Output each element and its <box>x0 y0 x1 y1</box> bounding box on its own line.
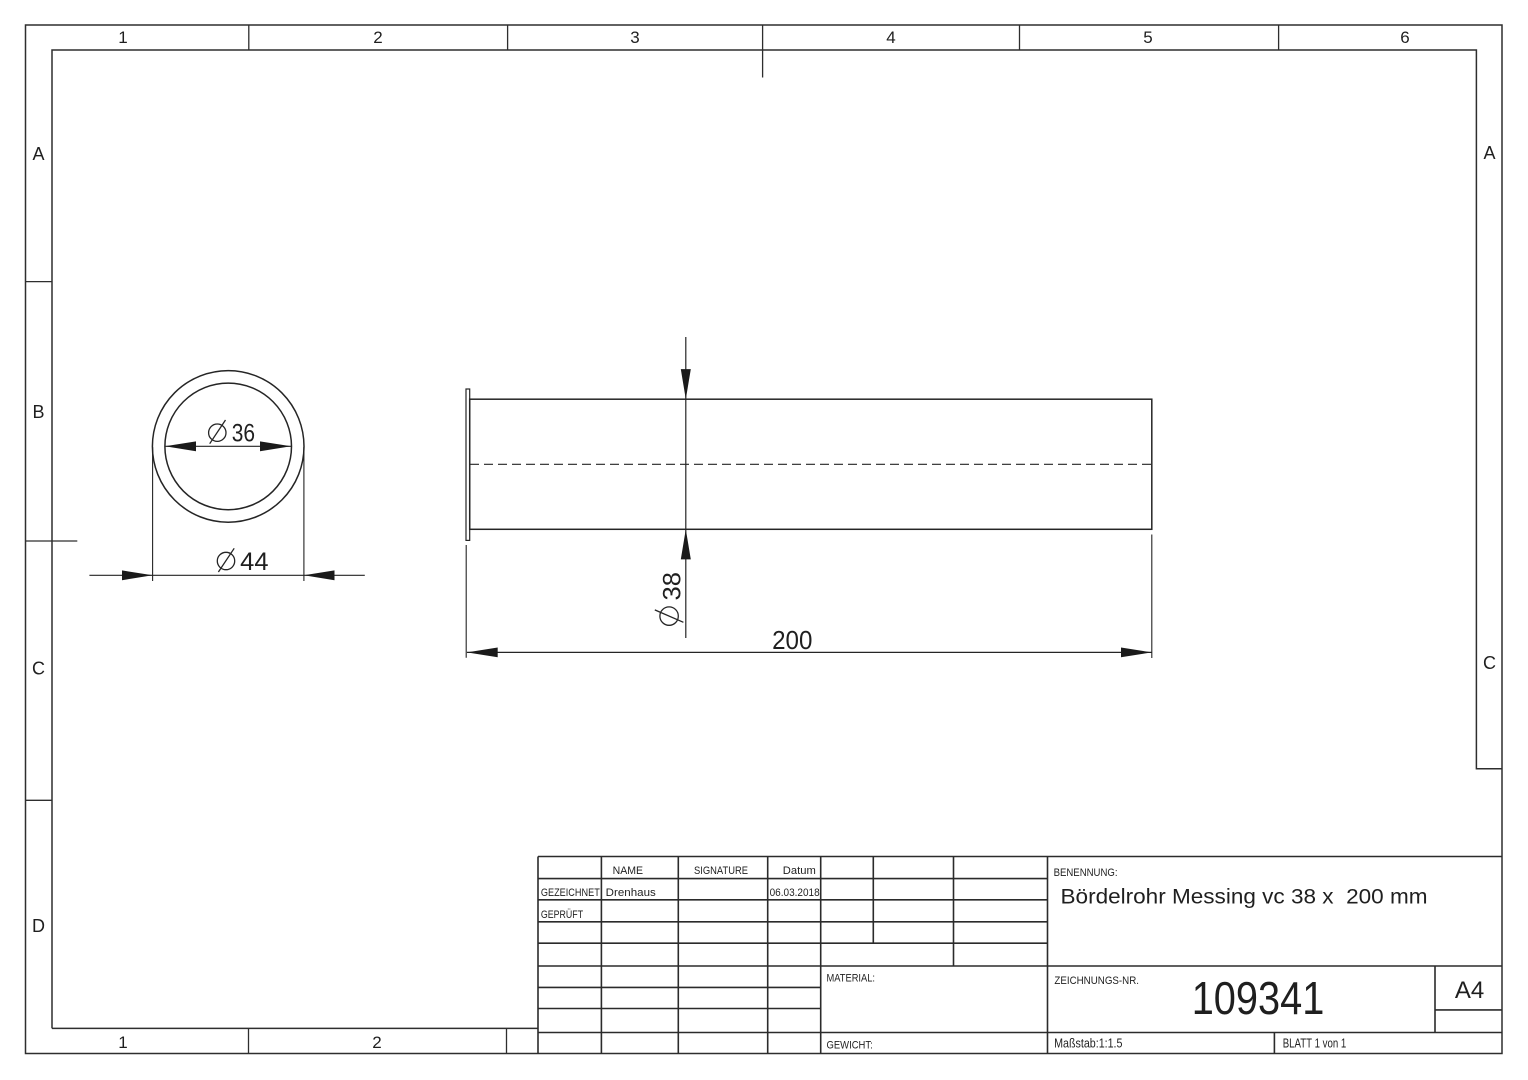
svg-text:2: 2 <box>372 1033 381 1052</box>
svg-text:D: D <box>32 916 45 936</box>
svg-text:A: A <box>1483 143 1495 163</box>
svg-text:Bördelrohr Messing vc 38 x 20: Bördelrohr Messing vc 38 x 200 mm <box>1061 885 1428 909</box>
svg-text:A: A <box>32 144 44 164</box>
svg-text:06.03.2018: 06.03.2018 <box>770 887 820 899</box>
svg-text:GEZEICHNET: GEZEICHNET <box>541 887 600 899</box>
svg-text:44: 44 <box>240 548 268 576</box>
svg-text:GEPRÜFT: GEPRÜFT <box>541 909 583 921</box>
svg-text:C: C <box>32 659 45 679</box>
svg-text:SIGNATURE: SIGNATURE <box>694 865 748 877</box>
svg-text:B: B <box>32 402 44 422</box>
svg-text:5: 5 <box>1143 28 1152 47</box>
svg-text:GEWICHT:: GEWICHT: <box>827 1040 873 1052</box>
svg-text:Datum: Datum <box>783 865 816 877</box>
svg-text:ZEICHNUNGS-NR.: ZEICHNUNGS-NR. <box>1054 975 1139 987</box>
svg-text:C: C <box>1483 653 1496 673</box>
svg-text:38: 38 <box>659 572 687 600</box>
svg-text:109341: 109341 <box>1192 972 1325 1024</box>
svg-text:36: 36 <box>232 420 255 448</box>
svg-text:6: 6 <box>1400 28 1409 47</box>
svg-text:4: 4 <box>886 28 895 47</box>
svg-text:200: 200 <box>772 625 812 655</box>
svg-text:BLATT 1 von 1: BLATT 1 von 1 <box>1283 1036 1347 1051</box>
svg-text:NAME: NAME <box>613 865 643 877</box>
svg-text:2: 2 <box>373 28 382 47</box>
svg-text:Maßstab:1:1.5: Maßstab:1:1.5 <box>1054 1036 1122 1051</box>
svg-text:3: 3 <box>630 28 639 47</box>
svg-text:1: 1 <box>118 28 127 47</box>
svg-text:Drenhaus: Drenhaus <box>606 887 657 899</box>
svg-text:1: 1 <box>118 1033 127 1052</box>
svg-text:A4: A4 <box>1455 977 1484 1004</box>
svg-text:BENENNUNG:: BENENNUNG: <box>1054 867 1118 879</box>
svg-text:MATERIAL:: MATERIAL: <box>827 973 876 985</box>
